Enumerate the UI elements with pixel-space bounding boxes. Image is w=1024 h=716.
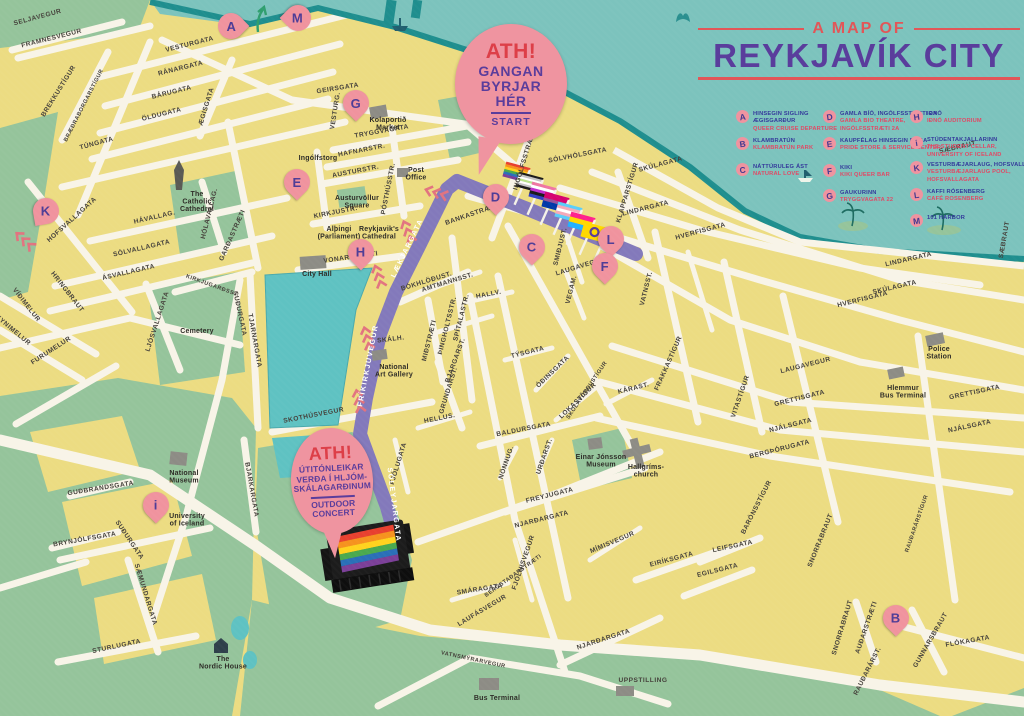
map-pin-letter: G (351, 97, 361, 110)
legend-line-english: THE STUDENT CELLAR, (927, 144, 1002, 150)
legend-badge-k: K (909, 160, 924, 175)
title-rule-left (698, 28, 804, 31)
legend-badge-h: H (909, 109, 924, 124)
map-subtitle: A MAP OF (698, 20, 1020, 38)
start-callout-line1: GANGAN (478, 64, 543, 79)
legend-line-icelandic: IÐNÓ (927, 111, 982, 117)
legend-line-english: NATURAL LOVE (753, 171, 808, 177)
title-rule-right (914, 28, 1020, 31)
legend-entry-text: KLAMBRATÚNKLAMBRATÚN PARK (753, 137, 813, 152)
legend-entry-text: VESTURBÆJARLAUG, HOFSVALLAGATAVESTURBÆJA… (927, 161, 1024, 183)
legend-badge-l: L (909, 187, 924, 202)
map-title-block: A MAP OF REYKJAVÍK CITY (698, 20, 1020, 80)
map-pin-letter: A (226, 20, 235, 33)
landmark-label-city-hall: City Hall (302, 271, 332, 278)
legend-line-english: IÐNÓ AUDITORIUM (927, 118, 982, 124)
legend-entry-e: EKAUPFÉLAG HINSEGIN DAGAPRIDE STORE & SE… (823, 137, 913, 152)
landmark-label-post: PostOffice (405, 167, 426, 181)
legend-entry-h: HIÐNÓIÐNÓ AUDITORIUM (910, 110, 1000, 125)
legend-line-english: KLAMBRATÚN PARK (753, 145, 813, 151)
legend-badge-i: i (909, 135, 924, 150)
landmark-label-ing-lfstorg: Ingólfstorg (299, 155, 338, 162)
legend-line-english: KIKI QUEER BAR (840, 172, 890, 178)
legend-line-icelandic: KAFFI RÓSENBERG (927, 189, 985, 195)
legend-entry-text: KIKIKIKI QUEER BAR (840, 164, 890, 179)
landmark-label-university: Universityof Iceland (169, 513, 205, 527)
legend-badge-d: D (822, 109, 837, 124)
landmark-label-cemetery: Cemetery (180, 328, 214, 335)
legend-badge-c: C (735, 162, 750, 177)
map-pin-letter: M (293, 12, 304, 25)
legend-line-icelandic: KIKI (840, 165, 890, 171)
landmark-label-national: NationalMuseum (169, 470, 199, 484)
legend-badge-a: A (735, 109, 750, 124)
map-pin-letter: L (607, 232, 615, 245)
landmark-label-bus-terminal: Bus Terminal (474, 695, 520, 702)
landmark-label-national: NationalArt Gallery (375, 364, 413, 378)
concert-callout-footer2: CONCERT (312, 508, 355, 520)
legend-entry-text: 101 HARBOR (927, 214, 965, 227)
start-callout-line3: HÉR (495, 94, 526, 109)
map-pin-letter: H (356, 245, 365, 258)
legend-badge-b: B (735, 136, 750, 151)
map-subtitle-text: A MAP OF (812, 20, 905, 38)
legend-entry-m: M101 HARBOR (910, 214, 1000, 227)
map-pin-letter: i (154, 499, 158, 512)
map-pin-letter: F (601, 259, 609, 272)
start-callout-attention: ATH! (486, 40, 537, 64)
start-callout-line2: BYRJAR (481, 79, 542, 94)
legend-entry-text: KAFFI RÓSENBERGCAFÉ ROSENBERG (927, 188, 985, 203)
street-label-uppstilling: UPPSTILLING (618, 677, 667, 684)
legend-entry-text: NÁTTÚRULEG ÁSTNATURAL LOVE (753, 163, 808, 178)
legend-line-english: HOFSVALLAGATA (927, 177, 1024, 183)
legend-line-english: TRYGGVAGATA 22 (840, 197, 893, 203)
legend-badge-f: F (822, 163, 837, 178)
legend-line-icelandic: NÁTTÚRULEG ÁST (753, 164, 808, 170)
start-callout-footer: START (491, 112, 530, 128)
map-title: REYKJAVÍK CITY (698, 38, 1020, 74)
map-pin-letter: E (293, 175, 302, 188)
legend-line-english: UNIVERSITY OF ICELAND (927, 152, 1002, 158)
legend-entry-text: IÐNÓIÐNÓ AUDITORIUM (927, 110, 982, 125)
landmark-label-police: PoliceStation (926, 346, 951, 360)
concert-callout-line3: SKÁLAGARÐINUM (293, 481, 371, 495)
legend-entry-g: GGAUKURINNTRYGGVAGATA 22 (823, 189, 913, 204)
legend-line-icelandic: STÚDENTAKJALLARINN (927, 137, 1002, 143)
legend-entry-i: iSTÚDENTAKJALLARINNTHE STUDENT CELLAR,UN… (910, 136, 1000, 158)
legend-line-icelandic: 101 HARBOR (927, 215, 965, 221)
legend-badge-g: G (822, 188, 837, 203)
landmark-label-reykjavik-s: Reykjavik'sCathedral (359, 226, 399, 240)
title-underline (698, 77, 1020, 80)
legend-entry-k: KVESTURBÆJARLAUG, HOFSVALLAGATAVESTURBÆJ… (910, 161, 1000, 183)
map-pin-letter: B (891, 611, 900, 624)
legend-entry-f: FKIKIKIKI QUEER BAR (823, 164, 913, 179)
parade-start-callout: ATH! GANGAN BYRJAR HÉR START (455, 24, 567, 144)
legend-badge-e: E (822, 136, 837, 151)
legend-line-english: CAFÉ ROSENBERG (927, 196, 985, 202)
legend-line-icelandic: KLAMBRATÚN (753, 138, 813, 144)
map-pin-letter: C (527, 240, 536, 253)
reykjavik-city-map-poster: SELJAVEGURFRAMNESVEGURVESTURGATARÁNARGAT… (0, 0, 1024, 716)
legend-entry-text: STÚDENTAKJALLARINNTHE STUDENT CELLAR,UNI… (927, 136, 1002, 158)
legend-entry-c: CNÁTTÚRULEG ÁSTNATURAL LOVE (736, 163, 826, 178)
legend-line-icelandic: GAUKURINN (840, 190, 893, 196)
legend-entry-l: LKAFFI RÓSENBERGCAFÉ ROSENBERG (910, 188, 1000, 203)
map-pin-letter: D (491, 190, 500, 203)
legend-entry-d: DGAMLA BÍÓ, INGÓLFSSTRÆTI 2AGAMLA BIO TH… (823, 110, 913, 132)
legend-entry-b: BKLAMBRATÚNKLAMBRATÚN PARK (736, 137, 826, 152)
legend-badge-m: M (909, 213, 924, 228)
legend-line-english: VESTURBÆJARLAUG POOL, (927, 169, 1024, 175)
legend-line-icelandic: VESTURBÆJARLAUG, HOFSVALLAGATA (927, 162, 1024, 168)
legend-entry-text: GAUKURINNTRYGGVAGATA 22 (840, 189, 893, 204)
map-pin-letter: K (41, 204, 50, 217)
legend-line-english: INGÓLFSSTRÆTI 2A (840, 126, 937, 132)
legend-entry-a: AHINSEGIN SIGLINGÆGISGARÐURQUEER CRUISE … (736, 110, 826, 132)
